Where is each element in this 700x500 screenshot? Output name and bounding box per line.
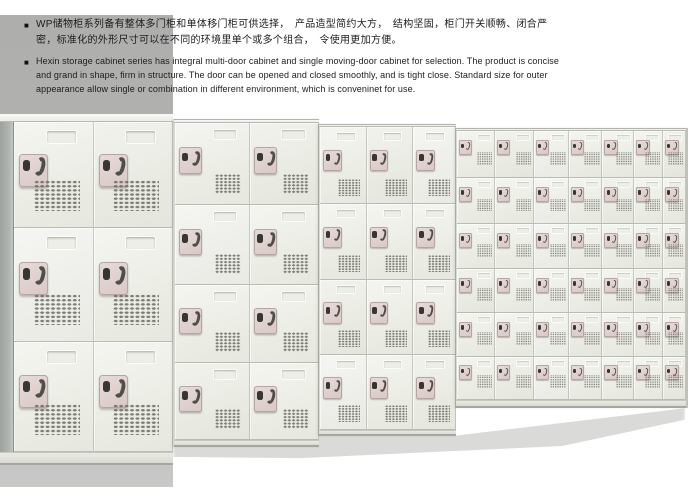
vent-grille	[616, 152, 631, 165]
door-lock	[179, 386, 202, 412]
locker-door	[495, 357, 534, 400]
vent-grille	[645, 375, 660, 388]
vent-grille	[477, 199, 492, 212]
label-slot	[477, 360, 491, 367]
label-slot	[46, 130, 77, 144]
locker-door	[663, 178, 686, 224]
label-slot	[551, 134, 565, 141]
vent-grille	[34, 294, 80, 325]
locker-door	[250, 363, 319, 440]
label-slot	[213, 211, 237, 222]
locker-door	[94, 228, 173, 342]
catalog-page: ■ WP储物柜系列备有整体多门柜和单体移门柜可供选择， 产品造型简约大方， 结构…	[0, 0, 700, 500]
door-grid	[456, 131, 686, 400]
label-slot	[516, 272, 530, 279]
locker-door	[413, 204, 456, 280]
label-slot	[213, 129, 237, 140]
locker-door	[94, 122, 173, 228]
vent-grille	[516, 288, 531, 301]
cabinet-cab-a	[0, 113, 173, 465]
vent-grille	[477, 244, 492, 257]
locker-door	[663, 357, 686, 400]
locker-door	[569, 357, 603, 400]
intro-paragraph-en: ■ Hexin storage cabinet series has integ…	[24, 54, 630, 96]
locker-door	[367, 127, 414, 204]
locker-door	[457, 224, 495, 269]
label-slot	[281, 211, 305, 222]
locker-door	[457, 131, 495, 178]
door-lock	[497, 365, 510, 380]
cabinet-base	[319, 430, 456, 436]
locker-door	[367, 280, 414, 355]
cabinet-top	[0, 113, 173, 122]
locker-door	[634, 131, 663, 178]
label-slot	[336, 209, 356, 218]
locker-door	[495, 269, 534, 313]
locker-door	[663, 224, 686, 269]
door-lock	[459, 140, 472, 155]
label-slot	[585, 272, 599, 279]
vent-grille	[668, 375, 683, 388]
label-slot	[616, 134, 630, 141]
label-slot	[425, 132, 445, 141]
locker-door	[250, 285, 319, 363]
locker-door	[663, 313, 686, 357]
locker-door	[320, 204, 367, 280]
door-lock	[416, 150, 435, 171]
locker-door	[250, 123, 319, 205]
door-lock	[536, 365, 549, 380]
vent-grille	[428, 255, 450, 272]
label-slot	[125, 350, 156, 364]
locker-door	[320, 355, 367, 430]
label-slot	[46, 236, 77, 250]
locker-door	[367, 204, 414, 280]
vent-grille	[668, 288, 683, 301]
label-slot	[516, 181, 530, 188]
label-slot	[516, 227, 530, 234]
vent-grille	[550, 288, 565, 301]
door-lock	[254, 386, 277, 412]
label-slot	[585, 316, 599, 323]
label-slot	[616, 360, 630, 367]
locker-door	[14, 342, 94, 452]
vent-grille	[550, 152, 565, 165]
door-lock	[323, 227, 342, 248]
vent-grille	[550, 332, 565, 345]
door-lock	[416, 377, 435, 398]
locker-door	[413, 280, 456, 355]
vent-grille	[516, 152, 531, 165]
vent-grille	[584, 199, 599, 212]
door-lock	[323, 150, 342, 171]
vent-grille	[477, 288, 492, 301]
label-slot	[281, 129, 305, 140]
door-lock	[571, 278, 584, 293]
vent-grille	[113, 404, 159, 435]
bullet-icon: ■	[24, 18, 36, 33]
door-lock	[571, 187, 584, 202]
locker-door	[175, 205, 250, 285]
label-slot	[383, 285, 403, 294]
locker-door	[534, 313, 569, 357]
locker-door	[457, 178, 495, 224]
cabinet-base	[174, 440, 319, 447]
label-slot	[477, 227, 491, 234]
vent-grille	[283, 174, 309, 194]
vent-grille	[385, 330, 407, 347]
label-slot	[616, 316, 630, 323]
locker-door	[569, 269, 603, 313]
vent-grille	[338, 330, 360, 347]
label-slot	[281, 291, 305, 302]
vent-grille	[385, 405, 407, 422]
door-lock	[497, 322, 510, 337]
vent-grille	[477, 152, 492, 165]
vent-grille	[645, 332, 660, 345]
locker-door	[495, 178, 534, 224]
vent-grille	[645, 288, 660, 301]
locker-door	[634, 224, 663, 269]
cabinet-cab-d	[455, 128, 688, 408]
locker-door	[634, 357, 663, 400]
vent-grille	[338, 405, 360, 422]
door-lock	[254, 308, 277, 334]
vent-grille	[283, 254, 309, 274]
vent-grille	[113, 294, 159, 325]
door-lock	[459, 278, 472, 293]
door-grid	[174, 123, 319, 440]
vent-grille	[616, 288, 631, 301]
locker-door	[569, 131, 603, 178]
label-slot	[383, 132, 403, 141]
door-lock	[536, 233, 549, 248]
locker-door	[534, 357, 569, 400]
vent-grille	[215, 174, 241, 194]
door-grid	[319, 127, 456, 430]
door-lock	[179, 229, 202, 255]
locker-door	[495, 131, 534, 178]
locker-door	[634, 269, 663, 313]
label-slot	[477, 134, 491, 141]
label-slot	[425, 285, 445, 294]
locker-door	[602, 357, 634, 400]
vent-grille	[477, 375, 492, 388]
door-lock	[497, 233, 510, 248]
label-slot	[213, 291, 237, 302]
label-slot	[477, 181, 491, 188]
locker-door	[602, 178, 634, 224]
label-slot	[213, 369, 237, 380]
locker-door	[602, 313, 634, 357]
locker-door	[534, 269, 569, 313]
label-slot	[516, 316, 530, 323]
door-lock	[459, 365, 472, 380]
locker-door	[534, 131, 569, 178]
intro-text-zh: WP储物柜系列备有整体多门柜和单体移门柜可供选择， 产品造型简约大方， 结构坚固…	[36, 17, 547, 49]
door-lock	[536, 278, 549, 293]
locker-door	[495, 224, 534, 269]
door-lock	[19, 262, 48, 295]
bullet-icon: ■	[24, 55, 36, 70]
door-lock	[571, 322, 584, 337]
label-slot	[425, 360, 445, 369]
vent-grille	[550, 199, 565, 212]
locker-door	[14, 228, 94, 342]
label-slot	[616, 272, 630, 279]
door-lock	[536, 322, 549, 337]
door-lock	[571, 233, 584, 248]
locker-door	[495, 313, 534, 357]
door-lock	[99, 262, 128, 295]
label-slot	[477, 272, 491, 279]
locker-door	[569, 178, 603, 224]
vent-grille	[516, 332, 531, 345]
vent-grille	[215, 409, 241, 429]
label-slot	[125, 130, 156, 144]
door-lock	[459, 322, 472, 337]
door-lock	[254, 147, 277, 173]
door-lock	[459, 233, 472, 248]
vent-grille	[34, 180, 80, 211]
locker-door	[663, 131, 686, 178]
label-slot	[425, 209, 445, 218]
vent-grille	[34, 404, 80, 435]
door-grid	[13, 122, 173, 452]
door-lock	[323, 377, 342, 398]
label-slot	[551, 360, 565, 367]
locker-door	[175, 285, 250, 363]
door-lock	[370, 150, 389, 171]
vent-grille	[283, 332, 309, 352]
door-lock	[416, 302, 435, 323]
door-lock	[370, 377, 389, 398]
vent-grille	[516, 375, 531, 388]
vent-grille	[668, 244, 683, 257]
vent-grille	[645, 152, 660, 165]
vent-grille	[338, 179, 360, 196]
vent-grille	[428, 405, 450, 422]
door-lock	[497, 140, 510, 155]
locker-door	[413, 127, 456, 204]
vent-grille	[385, 255, 407, 272]
label-slot	[616, 181, 630, 188]
locker-door	[413, 355, 456, 430]
cabinet-cab-c	[318, 124, 456, 436]
locker-door	[457, 357, 495, 400]
vent-grille	[616, 199, 631, 212]
locker-door	[320, 127, 367, 204]
label-slot	[516, 360, 530, 367]
door-lock	[370, 227, 389, 248]
locker-door	[534, 178, 569, 224]
label-slot	[551, 227, 565, 234]
door-lock	[179, 147, 202, 173]
locker-door	[94, 342, 173, 452]
vent-grille	[338, 255, 360, 272]
label-slot	[616, 227, 630, 234]
door-lock	[497, 278, 510, 293]
label-slot	[477, 316, 491, 323]
label-slot	[125, 236, 156, 250]
locker-door	[367, 355, 414, 430]
locker-door	[457, 269, 495, 313]
vent-grille	[616, 244, 631, 257]
vent-grille	[113, 180, 159, 211]
label-slot	[46, 350, 77, 364]
vent-grille	[668, 152, 683, 165]
locker-door	[320, 280, 367, 355]
locker-door	[634, 313, 663, 357]
door-lock	[571, 365, 584, 380]
cabinet-side-panel	[0, 113, 14, 465]
vent-grille	[516, 244, 531, 257]
door-lock	[323, 302, 342, 323]
vent-grille	[428, 330, 450, 347]
label-slot	[585, 360, 599, 367]
locker-door	[602, 224, 634, 269]
intro-paragraph-zh: ■ WP储物柜系列备有整体多门柜和单体移门柜可供选择， 产品造型简约大方， 结构…	[24, 17, 630, 49]
vent-grille	[477, 332, 492, 345]
locker-door	[175, 363, 250, 440]
vent-grille	[584, 375, 599, 388]
intro-block: ■ WP储物柜系列备有整体多门柜和单体移门柜可供选择， 产品造型简约大方， 结构…	[24, 17, 630, 101]
label-slot	[383, 209, 403, 218]
door-lock	[179, 308, 202, 334]
vent-grille	[385, 179, 407, 196]
label-slot	[585, 134, 599, 141]
label-slot	[585, 227, 599, 234]
vent-grille	[584, 332, 599, 345]
vent-grille	[550, 375, 565, 388]
locker-door	[14, 122, 94, 228]
label-slot	[336, 285, 356, 294]
locker-door	[663, 269, 686, 313]
vent-grille	[668, 332, 683, 345]
door-lock	[254, 229, 277, 255]
door-lock	[571, 140, 584, 155]
door-lock	[536, 187, 549, 202]
locker-door	[175, 123, 250, 205]
locker-door	[457, 313, 495, 357]
label-slot	[551, 272, 565, 279]
door-lock	[370, 302, 389, 323]
vent-grille	[616, 332, 631, 345]
vent-grille	[584, 152, 599, 165]
label-slot	[516, 134, 530, 141]
label-slot	[383, 360, 403, 369]
vent-grille	[668, 199, 683, 212]
label-slot	[336, 360, 356, 369]
vent-grille	[215, 254, 241, 274]
cabinet-cab-b	[173, 119, 319, 447]
label-slot	[551, 316, 565, 323]
locker-door	[250, 205, 319, 285]
label-slot	[336, 132, 356, 141]
label-slot	[585, 181, 599, 188]
vent-grille	[584, 244, 599, 257]
vent-grille	[616, 375, 631, 388]
vent-grille	[584, 288, 599, 301]
vent-grille	[428, 179, 450, 196]
locker-door	[602, 131, 634, 178]
door-lock	[459, 187, 472, 202]
vent-grille	[215, 332, 241, 352]
locker-door	[602, 269, 634, 313]
cabinet-base	[456, 400, 686, 408]
cabinet-base	[0, 452, 173, 465]
vent-grille	[516, 199, 531, 212]
door-lock	[497, 187, 510, 202]
vent-grille	[283, 409, 309, 429]
label-slot	[281, 369, 305, 380]
label-slot	[551, 181, 565, 188]
locker-door	[569, 313, 603, 357]
locker-door	[569, 224, 603, 269]
vent-grille	[645, 244, 660, 257]
door-lock	[536, 140, 549, 155]
locker-door	[534, 224, 569, 269]
locker-door	[634, 178, 663, 224]
intro-text-en: Hexin storage cabinet series has integra…	[36, 54, 559, 96]
vent-grille	[550, 244, 565, 257]
vent-grille	[645, 199, 660, 212]
door-lock	[416, 227, 435, 248]
